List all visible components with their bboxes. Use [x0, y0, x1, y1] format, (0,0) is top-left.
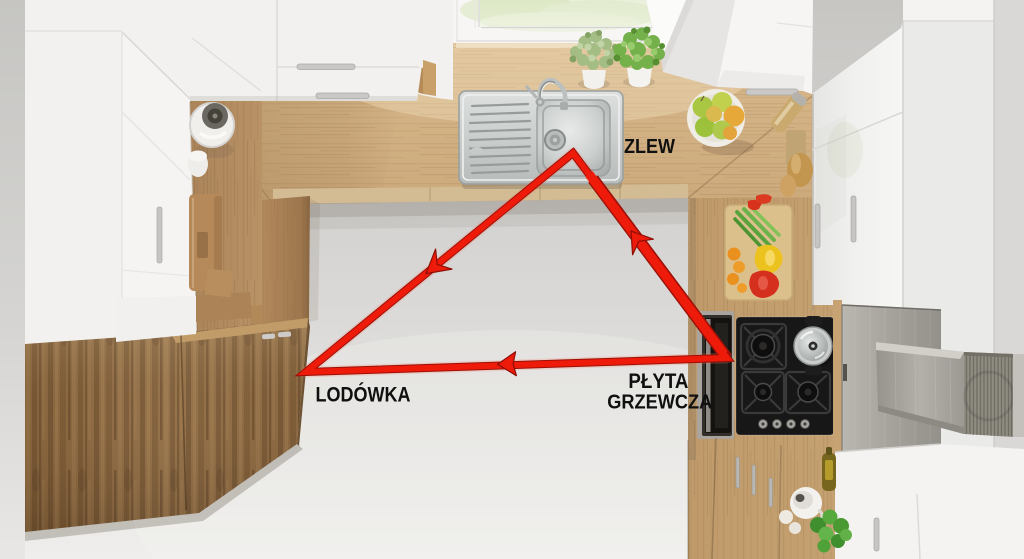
svg-text:ZLEW: ZLEW — [624, 136, 675, 158]
svg-text:LODÓWKA: LODÓWKA — [316, 383, 411, 407]
svg-text:GRZEWCZA: GRZEWCZA — [607, 390, 712, 413]
